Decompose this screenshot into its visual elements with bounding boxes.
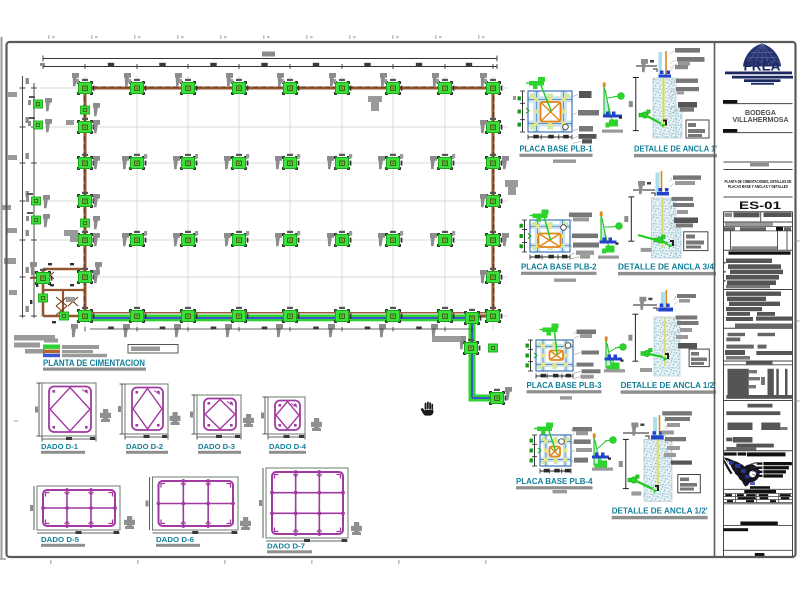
svg-text:DADO D-6: DADO D-6 <box>156 535 194 544</box>
svg-text:DADO D-4: DADO D-4 <box>269 442 307 451</box>
svg-text:PLACA BASE PLB-1: PLACA BASE PLB-1 <box>520 144 593 154</box>
svg-text:PLACA BASE PLB-3: PLACA BASE PLB-3 <box>527 380 602 390</box>
svg-text:DETALLE DE ANCLA 1/2': DETALLE DE ANCLA 1/2' <box>621 380 717 390</box>
svg-text:PLANTA DE CIMENTACION: PLANTA DE CIMENTACION <box>43 358 145 368</box>
svg-text:DADO D-3: DADO D-3 <box>198 442 235 451</box>
svg-text:FREA: FREA <box>744 60 781 74</box>
svg-text:DETALLE DE ANCLA 1': DETALLE DE ANCLA 1' <box>634 144 717 154</box>
svg-text:BODEGA: BODEGA <box>745 110 776 117</box>
svg-text:PLACAS BASE Y ANCLAS Y DETALLE: PLACAS BASE Y ANCLAS Y DETALLES <box>728 184 788 189</box>
svg-text:VILLAHERMOSA: VILLAHERMOSA <box>733 117 789 124</box>
svg-text:PLACA BASE PLB-4: PLACA BASE PLB-4 <box>516 476 593 486</box>
svg-text:DADO D-2: DADO D-2 <box>126 442 163 451</box>
svg-text:ES-01: ES-01 <box>739 200 781 212</box>
svg-text:DADO D-5: DADO D-5 <box>41 535 80 544</box>
svg-text:DETALLE DE ANCLA 3/4': DETALLE DE ANCLA 3/4' <box>618 262 716 272</box>
svg-text:DETALLE DE ANCLA 1/2': DETALLE DE ANCLA 1/2' <box>612 506 708 516</box>
svg-text:PLACA BASE PLB-2: PLACA BASE PLB-2 <box>521 262 597 272</box>
svg-text:DADO D-7: DADO D-7 <box>267 542 305 551</box>
svg-text:DADO D-1: DADO D-1 <box>41 442 79 451</box>
